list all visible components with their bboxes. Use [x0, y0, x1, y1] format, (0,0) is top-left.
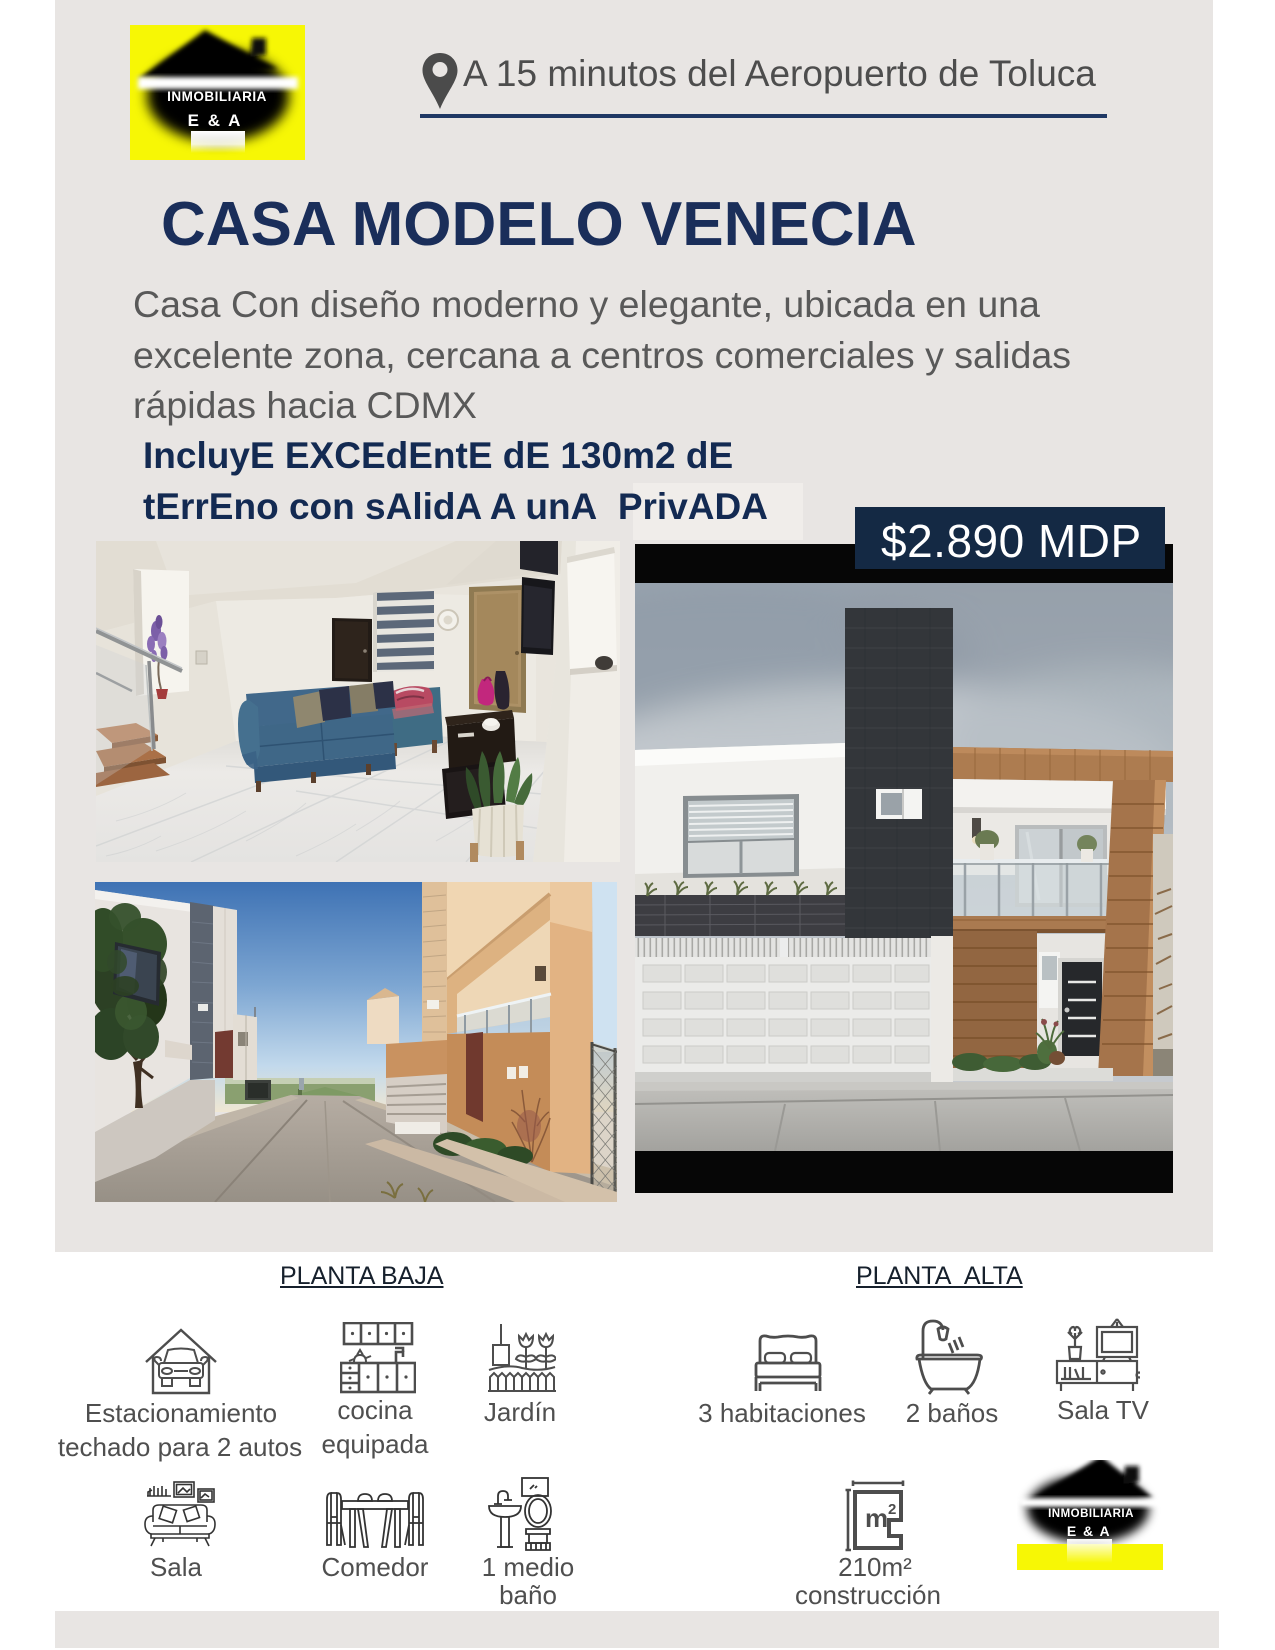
svg-text:E & A: E & A	[1067, 1523, 1111, 1539]
svg-text:INMOBILIARIA: INMOBILIARIA	[1048, 1508, 1134, 1520]
svg-text:E & A: E & A	[188, 111, 243, 130]
svg-text:INMOBILIARIA: INMOBILIARIA	[167, 89, 267, 104]
svg-text:m: m	[865, 1503, 888, 1533]
svg-text:2: 2	[888, 1501, 896, 1518]
